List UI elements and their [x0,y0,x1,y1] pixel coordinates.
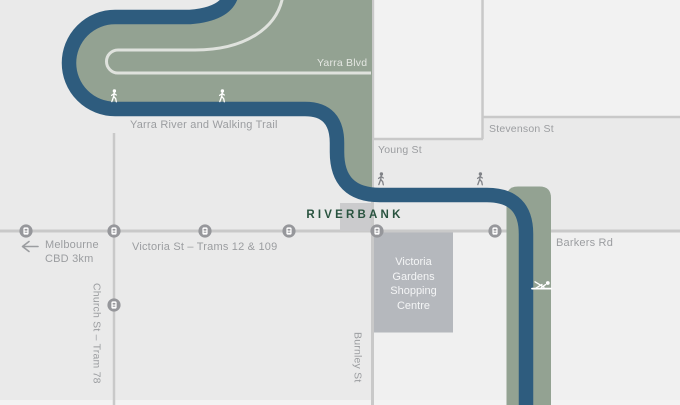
label-church-st: Church St – Tram 78 [89,283,103,384]
label-melbourne-line2: CBD 3km [45,253,93,265]
pedestrian-icon [478,172,483,185]
block-young-st [375,0,483,139]
label-burnley-st: Burnley St [350,332,364,382]
label-melbourne-line1: Melbourne [45,239,99,251]
tram-stop-icon [198,224,211,237]
tram-stop-icon [19,224,32,237]
shopping-centre-line: Shopping [390,285,437,297]
block-bottom-edge [0,400,680,405]
label-barkers-rd: Barkers Rd [556,237,613,251]
block-stevenson-st [484,0,680,117]
label-young-st: Young St [378,144,422,158]
riverbank-wordmark: RIVERBANK [302,209,408,221]
tram-stop-icon [370,224,383,237]
riverbank-location-map: Yarra Blvd Yarra River and Walking Trail… [0,0,680,405]
label-melbourne-cbd: MelbourneCBD 3km [45,239,99,266]
label-shopping-centre: VictoriaGardensShoppingCentre [374,255,453,313]
pedestrian-icon [379,172,384,185]
left-arrow-icon [23,242,39,252]
tram-stop-icon [107,298,120,311]
label-walking-trail: Yarra River and Walking Trail [130,119,278,133]
tram-stop-icon [488,224,501,237]
tram-stop-icon [282,224,295,237]
shopping-centre-line: Victoria [395,256,431,268]
shopping-centre-line: Centre [397,300,430,312]
tram-stop-icon [107,224,120,237]
label-stevenson-st: Stevenson St [489,123,554,137]
label-yarra-blvd: Yarra Blvd [317,57,367,71]
label-victoria-st: Victoria St – Trams 12 & 109 [132,241,277,255]
shopping-centre-line: Gardens [392,271,434,283]
